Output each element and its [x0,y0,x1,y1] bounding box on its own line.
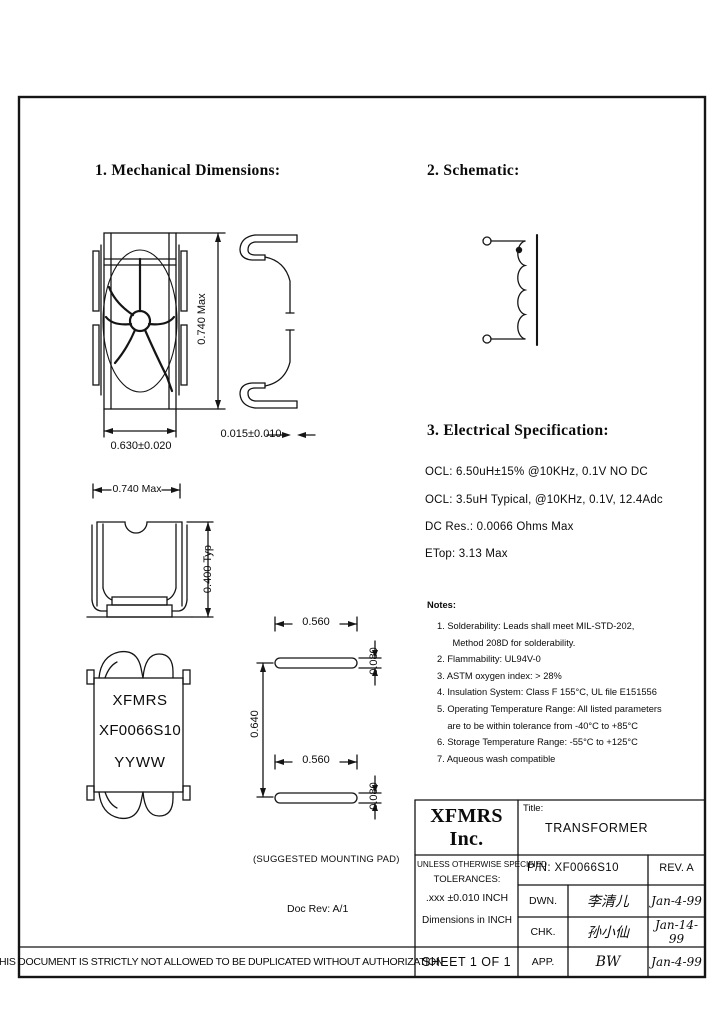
drawn-by-signature: 李清儿 [568,885,648,917]
spec-line-dcr: DC Res.: 0.0066 Ohms Max [425,521,574,533]
drawing-title: TRANSFORMER [545,821,648,835]
schematic-drawing [465,225,580,365]
schematic-heading: 2. Schematic: [427,162,520,180]
note-line: 3. ASTM oxygen index: > 28% [437,668,662,685]
marking-date-code: YYWW [85,754,195,771]
tolerance-note-line: TOLERANCES: [417,874,517,885]
note-line: 2. Flammability: UL94V-0 [437,651,662,668]
dim-pad-width-bottom: 0.560 [294,754,338,766]
mechanical-dimensions-heading: 1. Mechanical Dimensions: [95,162,280,180]
doc-rev-label: Doc Rev: A/1 [287,903,348,915]
note-line: 4. Insulation System: Class F 155°C, UL … [437,684,662,701]
approved-by-label: APP. [518,947,568,977]
marking-brand: XFMRS [85,692,195,709]
checked-date: Jan-14-99 [648,917,705,947]
note-line: 7. Aqueous wash compatible [437,751,662,768]
dim-side-view-gap: 0.015±0.010 [216,428,286,440]
tolerance-note-line: Dimensions in INCH [417,915,517,926]
drawing-page: 1. Mechanical Dimensions: 2. Schematic: … [0,0,720,1012]
note-line: Method 208D for solderability. [437,635,662,652]
part-number: P/N: XF0066S10 [527,862,619,874]
side-view-drawing [215,225,315,455]
duplication-disclaimer: THIS DOCUMENT IS STRICTLY NOT ALLOWED TO… [21,947,415,977]
dim-pad-height-bottom: 0.080 [368,774,380,818]
revision: REV. A [648,862,705,874]
note-line: 5. Operating Temperature Range: All list… [437,701,662,718]
drawn-by-label: DWN. [518,885,568,917]
dim-pad-pitch: 0.640 [249,702,261,746]
polarity-dot [516,247,522,253]
title-label: Title: [523,803,543,814]
checked-by-signature: 孙小仙 [568,917,648,947]
electrical-specification-heading: 3. Electrical Specification: [427,422,609,440]
spec-line-ocl-typ: OCL: 3.5uH Typical, @10KHz, 0.1V, 12.4Ad… [425,494,663,506]
mounting-pad-caption: (SUGGESTED MOUNTING PAD) [253,854,400,865]
company-name: XFMRS Inc. [416,800,517,855]
note-line: are to be within tolerance from -40°C to… [437,718,662,735]
dim-pad-width-top: 0.560 [294,616,338,628]
approved-by-signature: BW [568,947,648,977]
drawn-date: Jan-4-99 [648,885,705,917]
top-view-drawing [85,225,235,465]
spec-line-ocl: OCL: 6.50uH±15% @10KHz, 0.1V NO DC [425,466,648,478]
dim-pad-height-top: 0.080 [368,639,380,683]
checked-by-label: CHK. [518,917,568,947]
dim-front-view-height: 0.400 Typ [202,534,214,604]
spec-line-etop: ETop: 3.13 Max [425,548,508,560]
tolerance-note-line: UNLESS OTHERWISE SPECIFIED [417,860,517,869]
dim-top-view-width: 0.630±0.020 [96,440,186,452]
dim-front-view-width: 0.740 Max [102,483,172,495]
dim-top-view-height: 0.740 Max [196,284,208,354]
notes-heading: Notes: [427,600,456,610]
note-line: 6. Storage Temperature Range: -55°C to +… [437,734,662,751]
note-line: 1. Solderability: Leads shall meet MIL-S… [437,618,662,635]
notes-list: 1. Solderability: Leads shall meet MIL-S… [437,618,662,767]
tolerance-note-line: .xxx ±0.010 INCH [417,892,517,904]
marking-part-number: XF0066S10 [85,722,195,739]
approved-date: Jan-4-99 [648,947,705,977]
